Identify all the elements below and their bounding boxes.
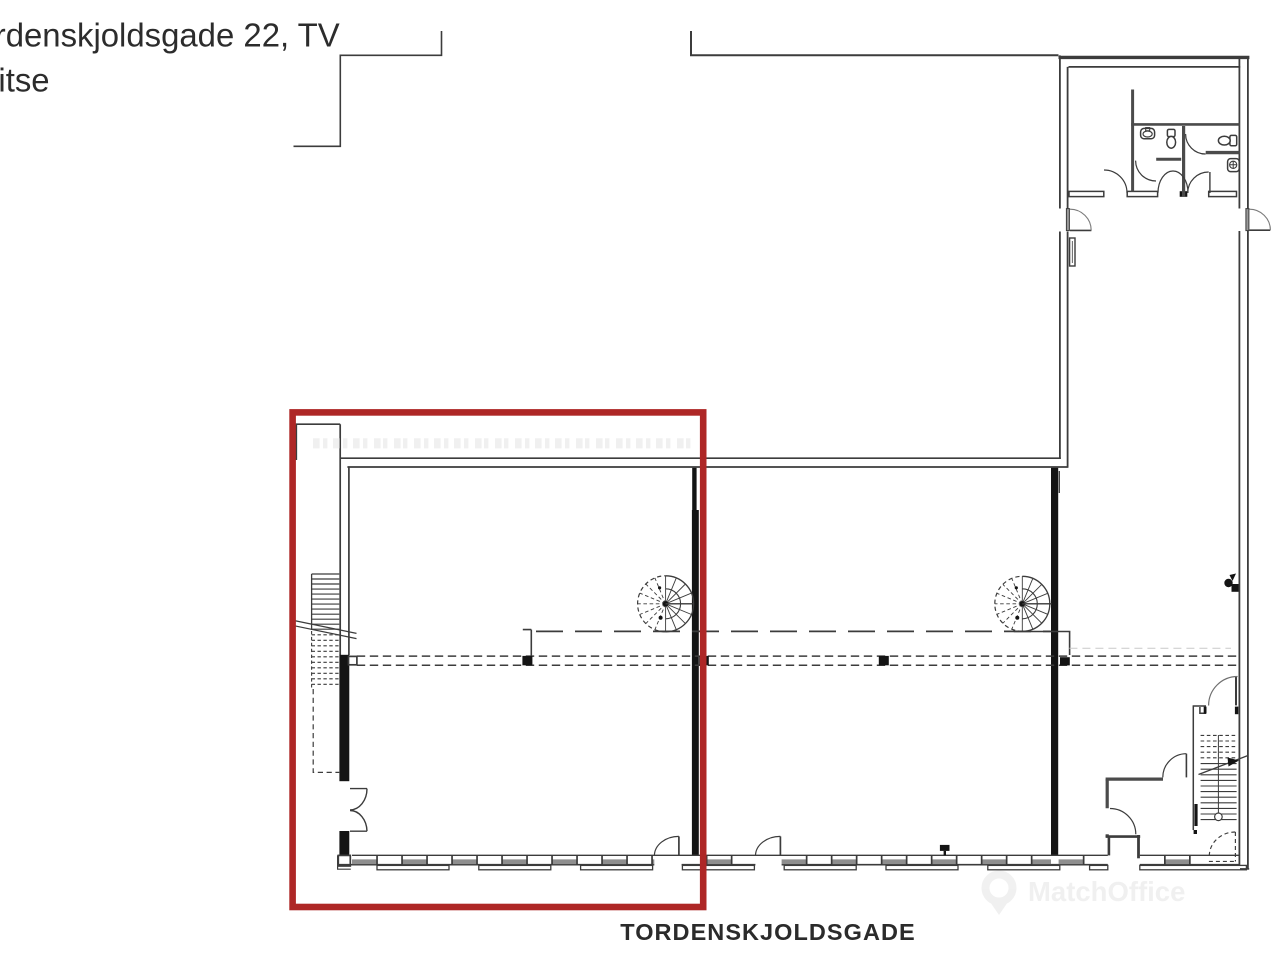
svg-text:Skitse: Skitse [0,62,50,99]
svg-text:MatchOffice: MatchOffice [1028,876,1185,907]
svg-text:Tordenskjoldsgade 22, TV: Tordenskjoldsgade 22, TV [0,17,340,54]
svg-text:TORDENSKJOLDSGADE: TORDENSKJOLDSGADE [620,919,916,945]
